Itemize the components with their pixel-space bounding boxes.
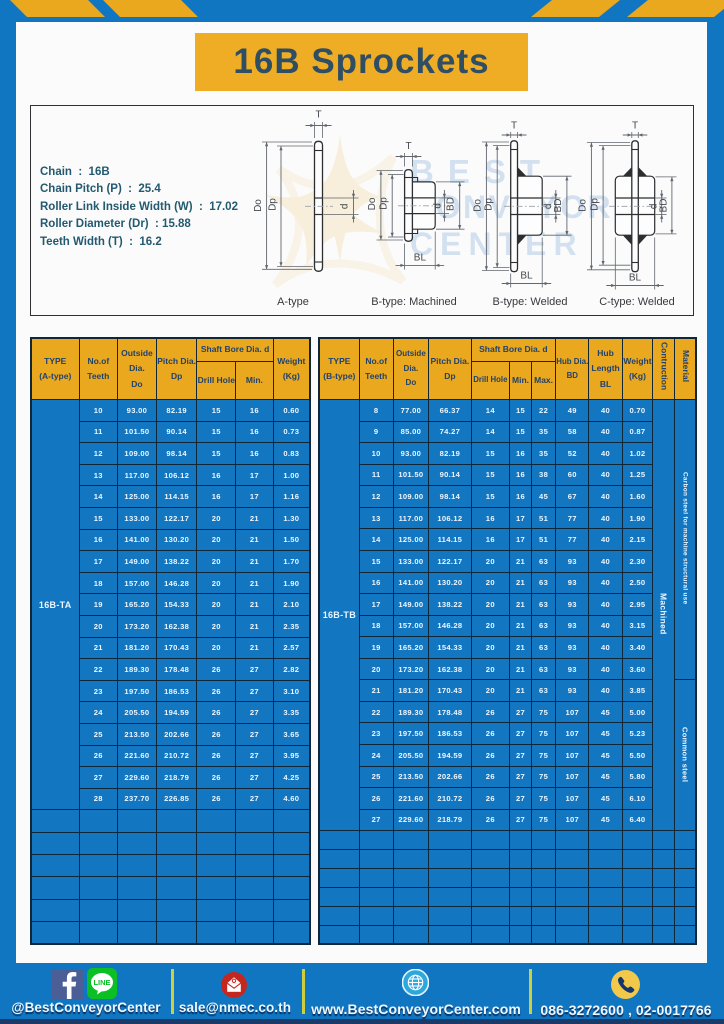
svg-text:B-type: Machined: B-type: Machined <box>371 296 457 308</box>
svg-text:A-type: A-type <box>277 296 309 308</box>
svg-text:Dp: Dp <box>267 198 278 211</box>
svg-text:BD: BD <box>553 199 564 213</box>
svg-text:LINE: LINE <box>93 978 110 987</box>
svg-text:T: T <box>315 110 321 121</box>
svg-text:Do: Do <box>473 199 484 212</box>
svg-text:Do: Do <box>253 199 264 212</box>
svg-text:d: d <box>432 203 443 209</box>
svg-text:d: d <box>340 204 351 210</box>
svg-text:BL: BL <box>520 271 533 282</box>
svg-text:T: T <box>511 121 517 132</box>
svg-text:T: T <box>632 121 638 132</box>
svg-text:Do: Do <box>367 197 378 210</box>
svg-text:T: T <box>405 141 411 152</box>
svg-text:Do: Do <box>578 199 589 212</box>
svg-text:Dp: Dp <box>484 198 495 211</box>
svg-text:B-type: Welded: B-type: Welded <box>492 296 567 308</box>
svg-text:BD: BD <box>446 197 457 211</box>
svg-text:BD: BD <box>659 199 670 213</box>
svg-text:BL: BL <box>629 273 642 284</box>
svg-text:BL: BL <box>414 253 427 264</box>
svg-text:Dp: Dp <box>589 198 600 211</box>
svg-text:Dp: Dp <box>379 197 390 210</box>
svg-text:C-type: Welded: C-type: Welded <box>599 296 675 308</box>
